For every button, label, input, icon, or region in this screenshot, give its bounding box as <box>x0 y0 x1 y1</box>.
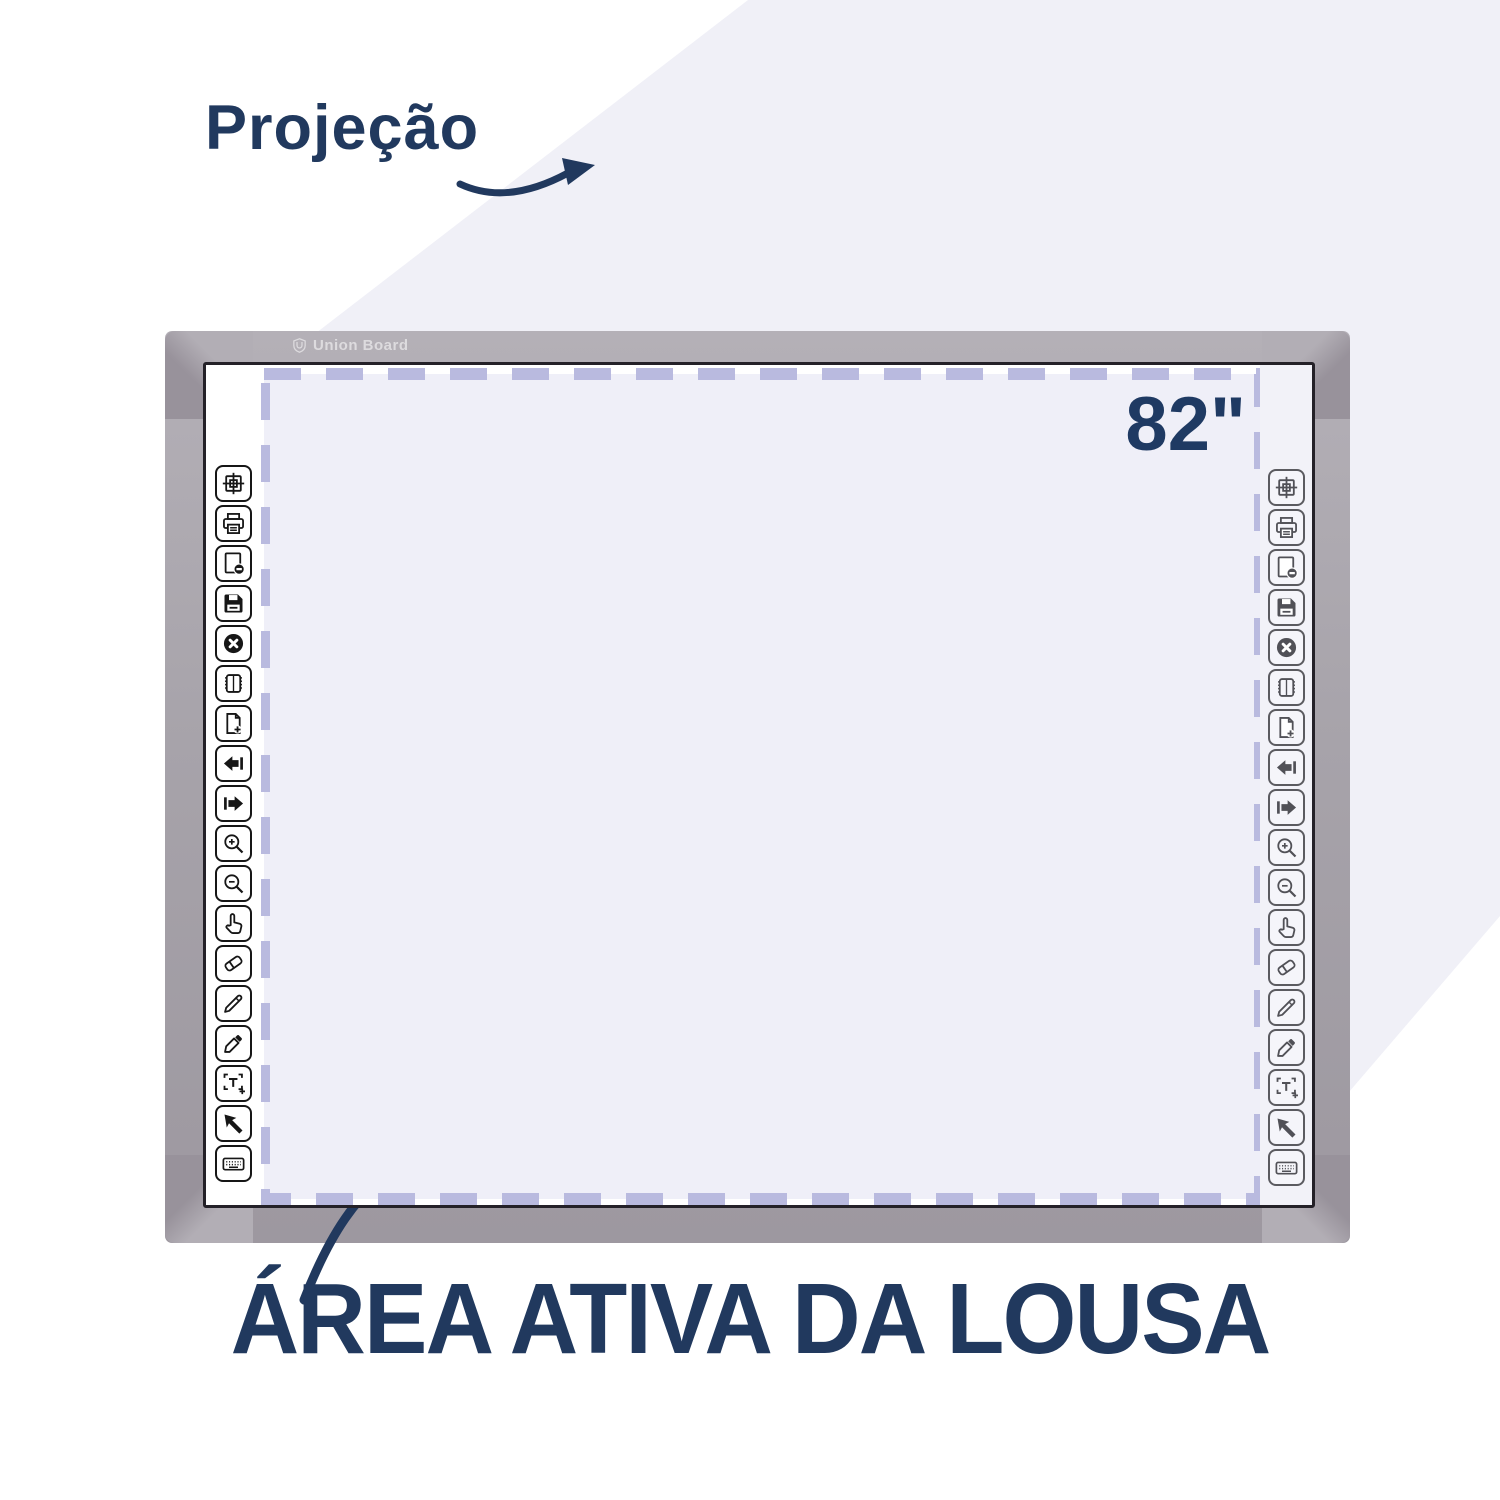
zoom-in-button[interactable] <box>1268 829 1305 866</box>
text-icon <box>1273 1074 1300 1101</box>
save-icon <box>220 590 247 617</box>
keyboard-icon <box>1273 1154 1300 1181</box>
eraser-button[interactable] <box>1268 949 1305 986</box>
next-button[interactable] <box>1268 789 1305 826</box>
highlighter-button[interactable] <box>1268 1029 1305 1066</box>
highlighter-button[interactable] <box>215 1025 252 1062</box>
text-button[interactable] <box>1268 1069 1305 1106</box>
page-remove-button[interactable] <box>1268 549 1305 586</box>
text-button[interactable] <box>215 1065 252 1102</box>
save-button[interactable] <box>215 585 252 622</box>
previous-icon <box>220 750 247 777</box>
brand-shield-icon <box>291 337 308 354</box>
previous-button[interactable] <box>215 745 252 782</box>
highlighter-icon <box>220 1030 247 1057</box>
previous-button[interactable] <box>1268 749 1305 786</box>
text-icon <box>220 1070 247 1097</box>
active-area-label: ÁREA ATIVA DA LOUSA <box>38 1262 1463 1377</box>
pencil-icon <box>220 990 247 1017</box>
select-icon <box>220 1110 247 1137</box>
previous-icon <box>1273 754 1300 781</box>
zoom-in-icon <box>220 830 247 857</box>
zoom-out-button[interactable] <box>1268 869 1305 906</box>
zoom-out-icon <box>1273 874 1300 901</box>
pencil-button[interactable] <box>1268 989 1305 1026</box>
page-remove-icon <box>1273 554 1300 581</box>
page-add-icon <box>220 710 247 737</box>
projection-area-outline <box>258 368 1266 1205</box>
pan-button[interactable] <box>1268 909 1305 946</box>
page-add-button[interactable] <box>1268 709 1305 746</box>
select-icon <box>1273 1114 1300 1141</box>
keyboard-icon <box>220 1150 247 1177</box>
zoom-out-button[interactable] <box>215 865 252 902</box>
page-add-icon <box>1273 714 1300 741</box>
close-icon <box>220 630 247 657</box>
board-surface: 82" <box>203 362 1315 1208</box>
zoom-in-button[interactable] <box>215 825 252 862</box>
keyboard-button[interactable] <box>215 1145 252 1182</box>
select-button[interactable] <box>215 1105 252 1142</box>
pan-icon <box>1273 914 1300 941</box>
left-toolbar <box>206 365 261 1205</box>
print-icon <box>1273 514 1300 541</box>
notebook-icon <box>220 670 247 697</box>
pencil-button[interactable] <box>215 985 252 1022</box>
close-button[interactable] <box>1268 629 1305 666</box>
print-button[interactable] <box>215 505 252 542</box>
pan-button[interactable] <box>215 905 252 942</box>
calibrate-button[interactable] <box>215 465 252 502</box>
zoom-in-icon <box>1273 834 1300 861</box>
page-remove-button[interactable] <box>215 545 252 582</box>
notebook-button[interactable] <box>215 665 252 702</box>
page-add-button[interactable] <box>215 705 252 742</box>
eraser-icon <box>220 950 247 977</box>
page-remove-icon <box>220 550 247 577</box>
highlighter-icon <box>1273 1034 1300 1061</box>
whiteboard: Union Board 82" <box>165 331 1350 1243</box>
brand-name: Union Board <box>313 337 409 354</box>
print-icon <box>220 510 247 537</box>
pan-icon <box>220 910 247 937</box>
projection-arrow-icon <box>452 146 602 208</box>
keyboard-button[interactable] <box>1268 1149 1305 1186</box>
next-button[interactable] <box>215 785 252 822</box>
notebook-icon <box>1273 674 1300 701</box>
calibrate-icon <box>220 470 247 497</box>
notebook-button[interactable] <box>1268 669 1305 706</box>
calibrate-button[interactable] <box>1268 469 1305 506</box>
print-button[interactable] <box>1268 509 1305 546</box>
right-toolbar <box>1260 365 1312 1205</box>
next-icon <box>1273 794 1300 821</box>
eraser-icon <box>1273 954 1300 981</box>
calibrate-icon <box>1273 474 1300 501</box>
close-button[interactable] <box>215 625 252 662</box>
save-icon <box>1273 594 1300 621</box>
zoom-out-icon <box>220 870 247 897</box>
board-size-label: 82" <box>1125 381 1246 468</box>
projection-label: Projeção <box>205 92 479 164</box>
eraser-button[interactable] <box>215 945 252 982</box>
save-button[interactable] <box>1268 589 1305 626</box>
select-button[interactable] <box>1268 1109 1305 1146</box>
pencil-icon <box>1273 994 1300 1021</box>
close-icon <box>1273 634 1300 661</box>
brand-logo: Union Board <box>291 337 409 354</box>
next-icon <box>220 790 247 817</box>
